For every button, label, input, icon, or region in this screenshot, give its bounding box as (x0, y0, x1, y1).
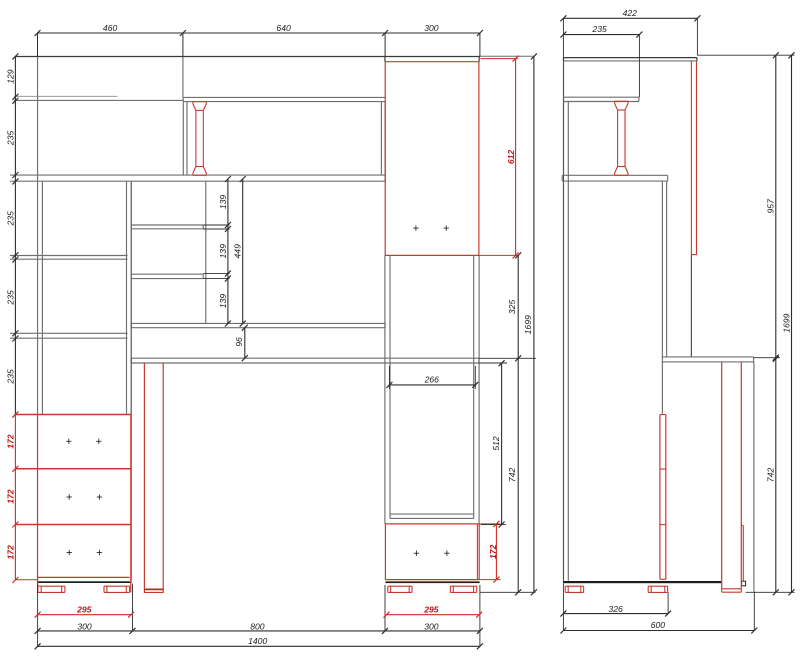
svg-text:235: 235 (5, 211, 15, 227)
svg-text:1699: 1699 (523, 315, 533, 334)
svg-text:235: 235 (5, 131, 15, 147)
svg-text:172: 172 (5, 489, 15, 504)
svg-text:800: 800 (250, 621, 265, 631)
svg-text:957: 957 (766, 198, 776, 214)
svg-text:512: 512 (491, 436, 501, 451)
svg-text:612: 612 (506, 150, 516, 165)
svg-text:1400: 1400 (248, 636, 267, 646)
svg-text:460: 460 (103, 23, 118, 33)
svg-text:640: 640 (276, 23, 291, 33)
svg-text:235: 235 (591, 24, 607, 34)
svg-text:449: 449 (232, 244, 242, 259)
svg-text:422: 422 (623, 8, 638, 18)
svg-text:172: 172 (488, 544, 498, 559)
svg-text:295: 295 (76, 604, 92, 614)
svg-text:139: 139 (218, 195, 228, 210)
svg-text:172: 172 (5, 545, 15, 560)
svg-text:326: 326 (608, 604, 623, 614)
svg-text:742: 742 (766, 468, 776, 483)
svg-text:129: 129 (5, 69, 15, 84)
svg-text:139: 139 (218, 244, 228, 259)
svg-text:139: 139 (218, 294, 228, 309)
svg-text:1699: 1699 (781, 313, 791, 332)
svg-text:172: 172 (5, 434, 15, 449)
svg-text:300: 300 (424, 621, 439, 631)
svg-text:266: 266 (424, 375, 440, 385)
svg-text:325: 325 (507, 300, 517, 315)
svg-text:235: 235 (5, 290, 15, 306)
svg-text:742: 742 (507, 468, 517, 483)
svg-text:600: 600 (651, 620, 666, 630)
svg-text:96: 96 (234, 337, 244, 347)
svg-text:235: 235 (5, 369, 15, 385)
svg-text:300: 300 (77, 621, 92, 631)
svg-text:300: 300 (424, 23, 439, 33)
svg-text:295: 295 (423, 604, 439, 614)
